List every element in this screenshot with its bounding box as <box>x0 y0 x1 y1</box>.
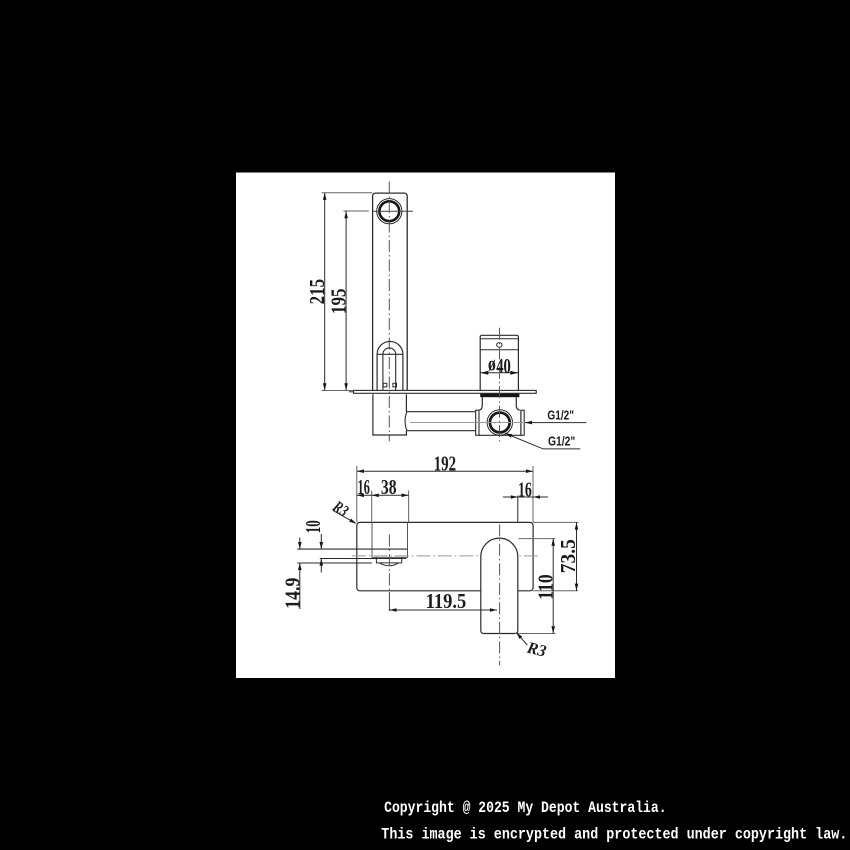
svg-text:73.5: 73.5 <box>556 539 580 573</box>
svg-text:38: 38 <box>381 475 397 499</box>
svg-text:10: 10 <box>301 520 325 533</box>
svg-text:G1/2": G1/2" <box>547 408 574 422</box>
svg-text:14.9: 14.9 <box>281 578 305 609</box>
svg-text:Copyright @ 2025 My Depot Aust: Copyright @ 2025 My Depot Australia. <box>384 799 666 817</box>
svg-text:119.5: 119.5 <box>426 589 467 613</box>
svg-text:This image is encrypted and pr: This image is encrypted and protected un… <box>381 826 847 844</box>
svg-text:192: 192 <box>434 452 456 476</box>
svg-text:40: 40 <box>496 354 511 378</box>
svg-text:G1/2": G1/2" <box>548 434 575 448</box>
svg-text:195: 195 <box>326 288 350 314</box>
svg-text:215: 215 <box>305 279 329 305</box>
svg-text:16: 16 <box>358 475 370 499</box>
svg-text:ø: ø <box>488 352 496 376</box>
svg-text:110: 110 <box>533 574 557 600</box>
svg-text:16: 16 <box>518 477 532 501</box>
